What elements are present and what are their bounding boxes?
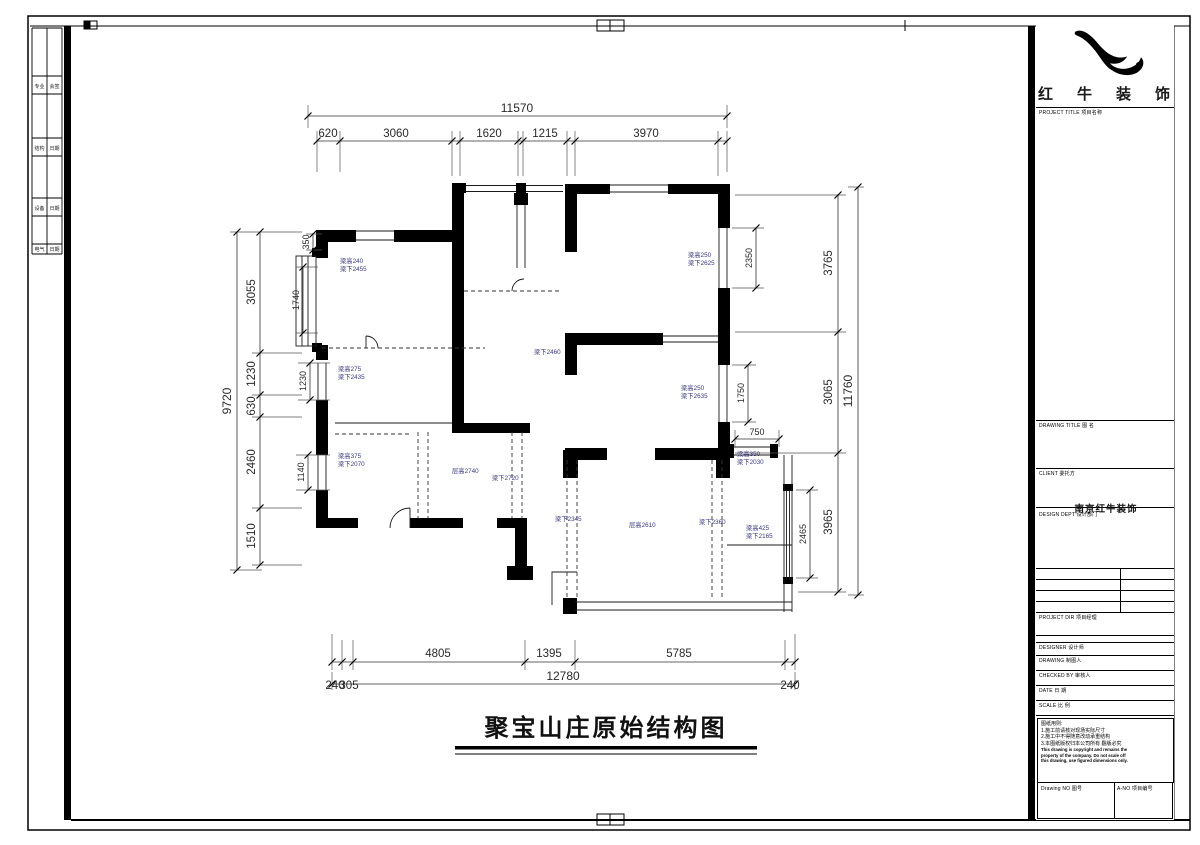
dim-text: 5785 xyxy=(666,648,692,660)
sign-cell: 结构 xyxy=(34,145,44,152)
project-dir-label: PROJECT DIR 项目经理 xyxy=(1039,614,1097,621)
beam-label: 梁下2030 xyxy=(737,457,764,466)
dim-text: 1215 xyxy=(532,128,558,140)
dim-text: 3060 xyxy=(383,128,409,140)
sign-cell: 日期 xyxy=(49,206,59,212)
beam-label: 层高2740 xyxy=(452,466,479,475)
dim-text: 240 xyxy=(780,680,799,692)
drawing-number-divider xyxy=(1114,783,1115,818)
divider xyxy=(1036,420,1174,421)
dim-text: 2465 xyxy=(798,524,808,544)
floor-plan-canvas: 专业 会签 结构 日期 设备 日期 电气 日期 xyxy=(0,0,1200,845)
beam-label: 梁下2720 xyxy=(492,473,519,482)
beam-label: 梁高250 xyxy=(688,250,712,259)
dim-text: 3765 xyxy=(823,250,835,276)
beam-label: 梁高250 xyxy=(681,383,705,392)
drawing-sheet: 专业 会签 结构 日期 设备 日期 电气 日期 xyxy=(0,0,1200,845)
sign-cell: 会签 xyxy=(49,83,59,90)
beam-label: 梁下2345 xyxy=(555,514,582,523)
windows xyxy=(296,185,792,612)
table-line xyxy=(1036,590,1174,591)
a-no-label: A-NO 项目编号 xyxy=(1117,785,1153,792)
sheet-frame xyxy=(28,16,1190,830)
dim-text: 750 xyxy=(749,427,764,437)
company-char: 饰 xyxy=(1155,83,1170,104)
sign-cell: 电气 xyxy=(34,246,44,253)
drawing-label: DRAWING 制图人 xyxy=(1039,657,1082,664)
company-char: 装 xyxy=(1116,83,1131,104)
beam-label: 梁下2455 xyxy=(340,264,367,273)
drawing-title-group: 聚宝山庄原始结构图 xyxy=(455,714,757,754)
designer-label: DESIGNER 设计师 xyxy=(1039,644,1084,651)
beam-label: 梁下2635 xyxy=(681,391,708,400)
table-divider xyxy=(1120,568,1121,612)
sign-cell: 日期 xyxy=(49,146,59,152)
sign-cell: 设备 xyxy=(34,205,44,212)
beam-label: 梁高375 xyxy=(338,451,362,460)
beam-label: 梁高350 xyxy=(737,449,761,458)
note-line: this drawing, use figured dimensions onl… xyxy=(1041,758,1173,764)
bull-logo-icon xyxy=(1075,31,1144,75)
beam-label: 梁下2070 xyxy=(338,459,365,468)
dim-text: 1230 xyxy=(246,361,258,387)
sign-cell: 专业 xyxy=(34,83,44,90)
walls xyxy=(312,183,793,614)
divider xyxy=(1036,107,1174,108)
beam-label: 梁下2435 xyxy=(338,372,365,381)
table-line xyxy=(1036,579,1174,580)
table-line xyxy=(1036,612,1174,613)
beam-labels: 梁高240 梁下2455 梁高250 梁下2625 梁高275 梁下2435 梁… xyxy=(338,250,773,540)
drawing-title: 聚宝山庄原始结构图 xyxy=(484,714,728,742)
dim-text: 305 xyxy=(339,680,358,692)
dim-text: 3065 xyxy=(823,379,835,405)
divider xyxy=(1036,685,1174,686)
dim-text: 3965 xyxy=(823,509,835,535)
table-line xyxy=(1036,568,1174,569)
date-label: DATE 日 期 xyxy=(1039,687,1066,694)
dim-text: 1740 xyxy=(291,290,301,310)
dim-text: 9720 xyxy=(220,387,234,414)
dim-text: 12780 xyxy=(546,669,580,683)
beam-label: 层高2610 xyxy=(629,520,656,529)
checked-label: CHECKED BY 审核人 xyxy=(1039,672,1091,679)
title-block: 红 牛 装 饰 PROJECT TITLE 项目名称 DRAWING TITLE… xyxy=(1036,25,1174,820)
dim-text: 4805 xyxy=(425,648,451,660)
drawing-number-box: Drawing NO 图号 A-NO 项目编号 xyxy=(1037,782,1173,819)
beam-label: 梁下2460 xyxy=(534,347,561,356)
drawing-title-label: DRAWING TITLE 图 名 xyxy=(1039,422,1094,429)
client-label: CLIENT 委托方 xyxy=(1039,470,1075,477)
dim-text: 630 xyxy=(246,396,258,415)
door-swings xyxy=(366,279,524,528)
beam-label: 梁高425 xyxy=(746,523,770,532)
scale-label: SCALE 比 例 xyxy=(1039,702,1070,709)
beam-label: 梁下2360 xyxy=(699,517,726,526)
dim-text: 3970 xyxy=(633,128,659,140)
dimension-texts: 11570 620 3060 1620 1215 3970 9720 3055 … xyxy=(220,101,855,692)
beam-label: 梁高240 xyxy=(340,256,364,265)
drawing-no-label: Drawing NO 图号 xyxy=(1041,785,1082,792)
dim-text: 620 xyxy=(318,128,337,140)
dim-text: 1510 xyxy=(246,523,258,549)
divider xyxy=(1036,670,1174,671)
dim-text: 11760 xyxy=(841,374,855,407)
divider xyxy=(1036,715,1174,716)
signature-strip xyxy=(32,28,62,254)
notes-box: 图纸用则: 1.施工前请核对现场实际尺寸 2.施工中不得随意改动承重结构 3.本… xyxy=(1037,718,1174,783)
company-name-header: 红 牛 装 饰 xyxy=(1038,83,1170,104)
project-title-label: PROJECT TITLE 项目名称 xyxy=(1039,109,1102,116)
dim-text: 3055 xyxy=(246,279,258,305)
divider xyxy=(1036,635,1174,636)
dim-text: 1750 xyxy=(736,383,746,403)
dim-text: 2460 xyxy=(246,449,258,475)
company-char: 牛 xyxy=(1077,83,1092,104)
company-char: 红 xyxy=(1038,83,1053,104)
divider xyxy=(1036,468,1174,469)
divider xyxy=(1036,655,1174,656)
table-line xyxy=(1036,601,1174,602)
beam-label: 梁下2165 xyxy=(746,531,773,540)
dim-text: 1395 xyxy=(536,648,562,660)
divider xyxy=(1036,642,1174,643)
dim-text: 2350 xyxy=(744,248,754,268)
company-logo xyxy=(1066,28,1154,83)
beam-label: 梁下2625 xyxy=(688,258,715,267)
sign-cell: 日期 xyxy=(49,247,59,253)
dim-text: 350 xyxy=(301,234,311,249)
dim-text: 1620 xyxy=(476,128,502,140)
dim-text: 1230 xyxy=(298,371,308,391)
divider xyxy=(1036,700,1174,701)
dim-text: 1140 xyxy=(296,462,306,481)
dept-label: DESIGN DEPT 设计部门 xyxy=(1039,511,1097,518)
dim-text: 11570 xyxy=(501,101,534,115)
beam-label: 梁高275 xyxy=(338,364,362,373)
